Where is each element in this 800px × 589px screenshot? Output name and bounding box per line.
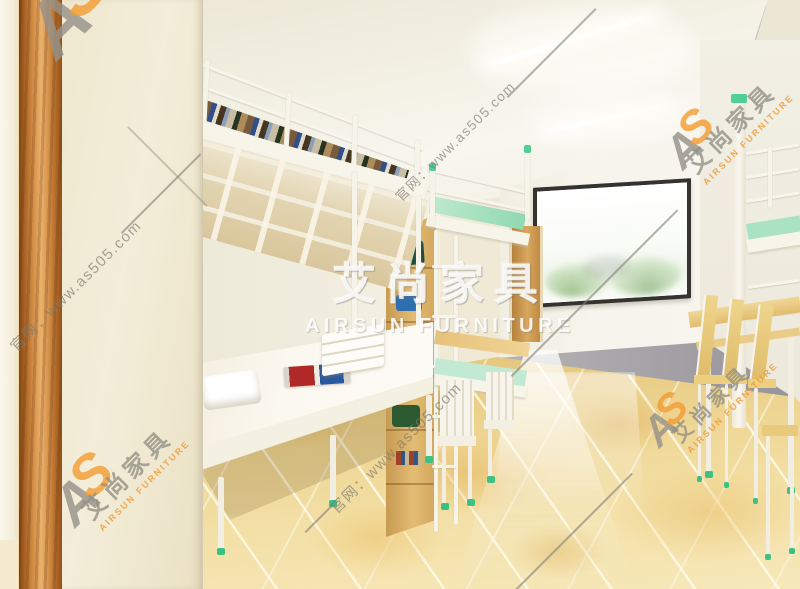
window-glass bbox=[537, 182, 687, 303]
chair-back bbox=[749, 304, 773, 381]
dormitory-room-photo: 艾尚家具 AIRSUN FURNITURE A S A S A S A S 艾尚… bbox=[0, 0, 800, 589]
bunk1-far-post bbox=[416, 196, 421, 326]
mint-post-cap bbox=[731, 94, 747, 103]
green-foot bbox=[425, 456, 433, 463]
ladder-rung bbox=[432, 265, 456, 268]
right-bunk-rail bbox=[746, 144, 800, 155]
mint-post-cap bbox=[524, 145, 531, 153]
green-foot bbox=[753, 498, 758, 504]
foreground-wall-sliver bbox=[0, 0, 20, 589]
ceiling-light-halo bbox=[470, 5, 700, 95]
green-foot bbox=[724, 482, 729, 488]
right-bunk-rail bbox=[746, 168, 800, 179]
right-bunk-rail-post bbox=[768, 146, 772, 208]
bed-leg bbox=[426, 395, 432, 457]
bed-leg bbox=[330, 435, 336, 501]
stool-leg bbox=[766, 436, 770, 554]
green-foot bbox=[765, 554, 771, 560]
white-chair-seat bbox=[484, 420, 516, 429]
chair-seat bbox=[694, 375, 722, 384]
bunk1-far-post bbox=[352, 172, 357, 332]
mint-post-cap bbox=[429, 163, 436, 171]
bunk2-post bbox=[525, 148, 530, 220]
foreground-near-wall bbox=[62, 0, 203, 589]
chair-seat bbox=[720, 375, 747, 384]
stool-leg bbox=[790, 436, 794, 548]
white-chair-back bbox=[486, 372, 514, 420]
chair-leg bbox=[725, 384, 728, 482]
green-foot bbox=[697, 476, 702, 482]
chair-back bbox=[722, 298, 744, 377]
green-foot bbox=[329, 500, 337, 507]
chair-back bbox=[696, 294, 718, 377]
green-foot bbox=[487, 476, 495, 483]
stool-seat bbox=[762, 425, 798, 436]
right-bunk-rail bbox=[746, 192, 800, 203]
bunk2-rail bbox=[428, 168, 526, 193]
chair-leg bbox=[698, 384, 701, 476]
green-foot bbox=[789, 548, 795, 554]
wooden-chairs bbox=[700, 295, 800, 535]
bed-leg bbox=[218, 477, 224, 549]
chair-seat bbox=[748, 379, 776, 388]
corridor-floor-corner bbox=[0, 540, 20, 589]
wood-door-frame bbox=[18, 0, 67, 589]
bunk2-post bbox=[430, 166, 435, 226]
green-foot bbox=[217, 548, 225, 555]
chair-leg bbox=[754, 388, 758, 498]
window bbox=[533, 178, 691, 308]
bunk1-lower-bed bbox=[180, 315, 480, 575]
chair-leg bbox=[488, 429, 492, 477]
